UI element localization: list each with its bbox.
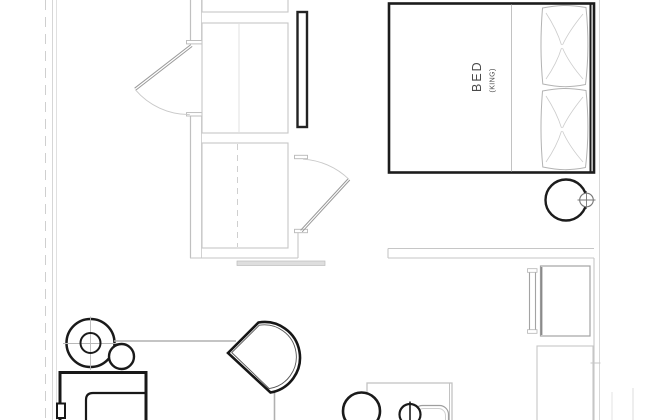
closet-door-leaf (301, 179, 350, 232)
armchair (57, 373, 146, 420)
table-lamp-icon (400, 402, 421, 420)
wardrobe-closet-upper (202, 23, 288, 133)
king-bed: BED (KING) (389, 4, 594, 173)
floor-plan-svg: BED (KING) (0, 0, 650, 420)
lounge-chair (228, 322, 300, 393)
entry-door (135, 45, 193, 115)
cabinet-door-cap-top (528, 269, 538, 273)
bed-label: BED (470, 60, 484, 92)
entry-wall (187, 0, 203, 258)
stool (109, 344, 134, 369)
closet-door (295, 155, 350, 232)
floor-plan: BED (KING) (0, 0, 650, 420)
closet-top-shelf (202, 0, 288, 12)
lounge-chair-outline (228, 322, 300, 393)
cabinet-door-cap-bottom (528, 330, 538, 334)
entry-door-leaf (135, 45, 193, 90)
cabinet-door-panel (530, 272, 536, 331)
bed-size-label: (KING) (490, 68, 497, 92)
pillow-2 (541, 88, 588, 169)
coffee-table-group (343, 383, 452, 420)
wardrobe-closet (202, 0, 288, 248)
door-threshold (237, 261, 325, 266)
bathroom-enclosure (537, 346, 593, 420)
closet-door-swing-arc (303, 159, 349, 179)
bedroom-partition-wall (388, 249, 594, 259)
wardrobe-closet-lower (202, 143, 288, 248)
armchair-notch (57, 404, 65, 419)
cabinet-body (541, 266, 591, 336)
pillow-1 (541, 5, 588, 86)
door-jamb-top (187, 41, 203, 44)
armchair-frame (60, 373, 146, 420)
minibar-cabinet (528, 266, 591, 336)
closet-door-jamb-top (295, 155, 308, 158)
stool-2 (343, 393, 380, 420)
full-length-mirror (298, 12, 308, 127)
entry-door-swing-arc (135, 90, 190, 115)
